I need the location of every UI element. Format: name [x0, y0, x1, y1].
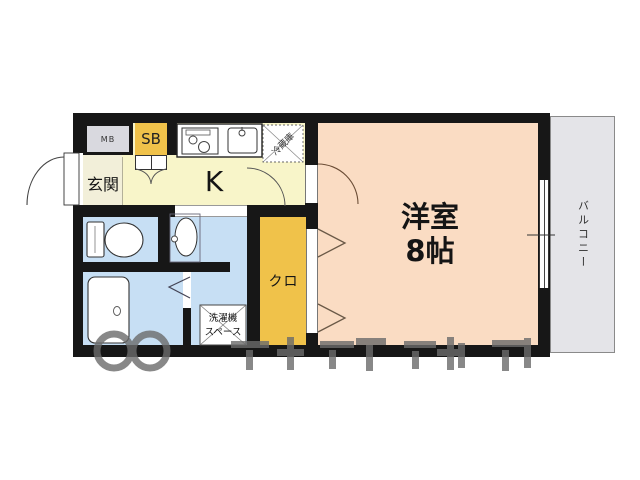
wall-bottom	[73, 345, 550, 357]
balcony-window	[539, 180, 549, 288]
entrance-door-icon	[27, 153, 79, 205]
closet-door	[306, 229, 318, 333]
balcony: バルコニー	[550, 116, 615, 353]
laundry-space-label: 洗濯機 スペース	[198, 310, 248, 342]
room-doorway	[305, 165, 318, 203]
washroom-doorway	[175, 205, 247, 217]
bath-door-gap	[183, 272, 191, 308]
wall-bath-lower	[183, 308, 191, 345]
floorplan: バルコニー MB SB	[0, 0, 640, 480]
wall-sb-counter-gap	[167, 123, 177, 155]
balcony-label: バルコニー	[575, 200, 591, 270]
wall-toilet-right	[158, 205, 170, 265]
laundry-line1: 洗濯機	[209, 312, 238, 326]
wall-left	[73, 113, 83, 357]
genkan-label: 玄関	[80, 172, 126, 194]
wall-under-toilet	[83, 262, 230, 272]
wall-closet-left	[247, 205, 260, 345]
shoe-box-shelf	[135, 155, 167, 170]
kitchen-label: K	[198, 160, 230, 202]
main-room-size: 8帖	[405, 234, 454, 268]
shoe-box-label: SB	[141, 130, 161, 148]
main-room-name: 洋室	[401, 200, 459, 234]
wall-top	[73, 113, 550, 123]
shoe-box: SB	[135, 123, 167, 155]
wall-closet-right-top	[306, 217, 318, 229]
main-room-label: 洋室 8帖	[330, 198, 530, 270]
meter-box-label: MB	[101, 135, 115, 144]
laundry-line2: スペース	[205, 326, 242, 340]
closet-label: クロ	[260, 271, 307, 291]
wall-kitchen-room-upper	[305, 123, 318, 165]
wall-closet-right-bottom	[306, 333, 318, 345]
meter-box: MB	[87, 126, 129, 152]
